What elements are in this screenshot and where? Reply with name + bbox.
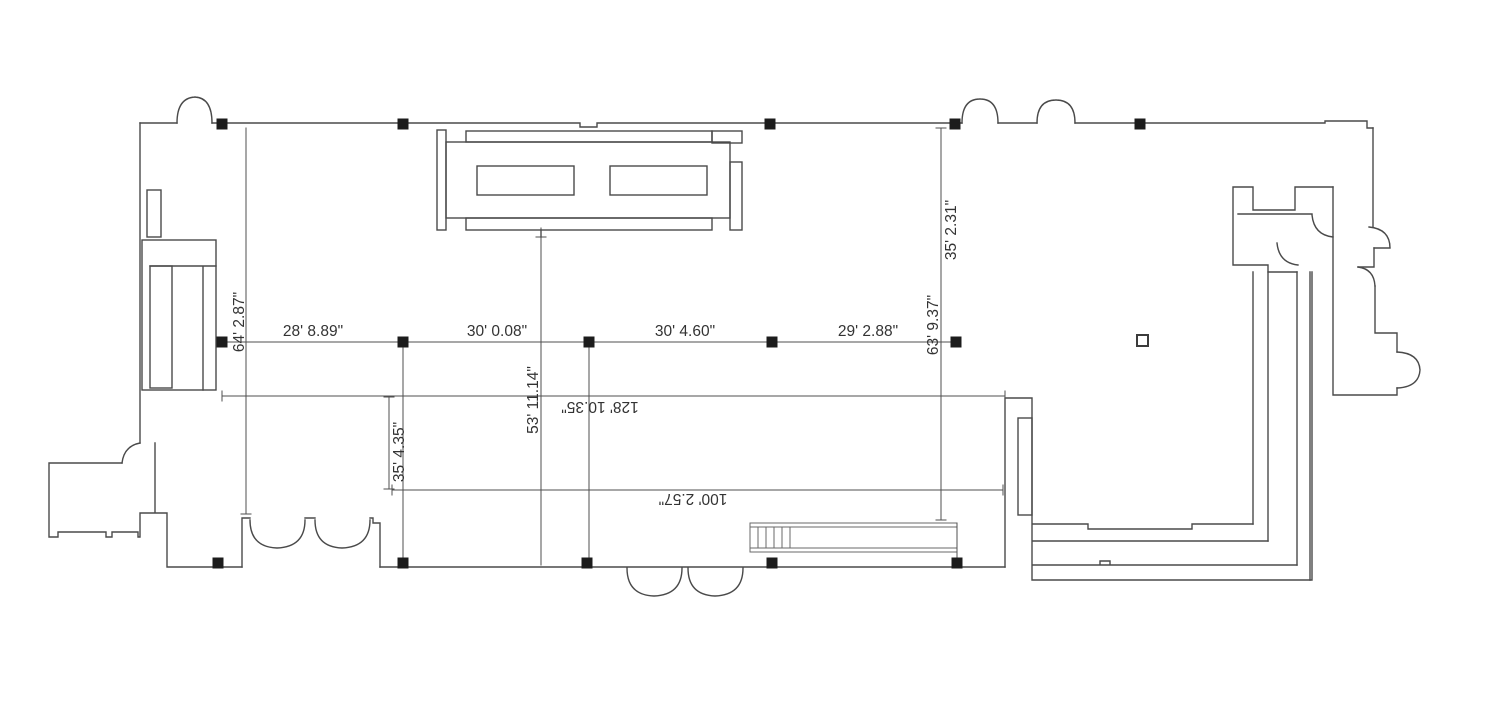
dimension-label-bay-1: 28' 8.89": [283, 323, 343, 340]
dimension-labels: 28' 8.89" 30' 0.08" 30' 4.60" 29' 2.88" …: [231, 200, 960, 507]
top-left-double-door-icon: [177, 97, 212, 123]
top-middle-double-door-2-icon: [1037, 100, 1075, 123]
column-outline-marker: [1137, 335, 1148, 346]
central-fixture: [437, 130, 742, 237]
column-marker: [398, 119, 409, 130]
column-marker: [951, 337, 962, 348]
floor-plan-canvas: 28' 8.89" 30' 0.08" 30' 4.60" 29' 2.88" …: [0, 0, 1494, 706]
right-wing-walls: [1005, 128, 1397, 580]
dimension-label-left-height: 64' 2.87": [231, 292, 248, 352]
dimension-label-bay-3: 30' 4.60": [655, 323, 715, 340]
dimension-label-bay-4: 29' 2.88": [838, 323, 898, 340]
dimension-label-overall-width: 128' 10.35": [561, 398, 638, 415]
column-marker: [767, 337, 778, 348]
right-wing-door-icons: [1277, 215, 1420, 388]
dimension-lines: [222, 128, 1005, 565]
column-marker: [1135, 119, 1146, 130]
dimension-label-lower-left-height: 35' 4.35": [391, 422, 408, 482]
column-marker: [582, 558, 593, 569]
top-middle-double-door-1-icon: [962, 99, 998, 123]
column-marker: [398, 337, 409, 348]
column-marker: [217, 119, 228, 130]
column-marker: [398, 558, 409, 569]
floor-plan-drawing: 28' 8.89" 30' 0.08" 30' 4.60" 29' 2.88" …: [0, 0, 1494, 706]
column-marker: [213, 558, 224, 569]
column-marker: [584, 337, 595, 348]
lower-center-entrance-doors-icon: [627, 568, 743, 596]
dimension-label-bay-2: 30' 0.08": [467, 323, 527, 340]
lower-left-entrance-doors-icon: [250, 520, 370, 548]
left-shaft-block: [142, 190, 216, 390]
dimension-label-lower-width: 100' 2.57": [659, 490, 728, 507]
column-marker: [952, 558, 963, 569]
column-marker: [217, 337, 228, 348]
staircase: [750, 523, 957, 552]
column-marker: [767, 558, 778, 569]
column-marker: [765, 119, 776, 130]
dimension-label-center-height: 53' 11.14": [525, 366, 542, 434]
column-marker: [950, 119, 961, 130]
pilaster: [1018, 418, 1032, 515]
dimension-label-right-upper-height: 35' 2.31": [943, 200, 960, 260]
left-wing-door-icon: [122, 443, 140, 463]
dimension-label-right-height: 63' 9.37": [925, 295, 942, 355]
